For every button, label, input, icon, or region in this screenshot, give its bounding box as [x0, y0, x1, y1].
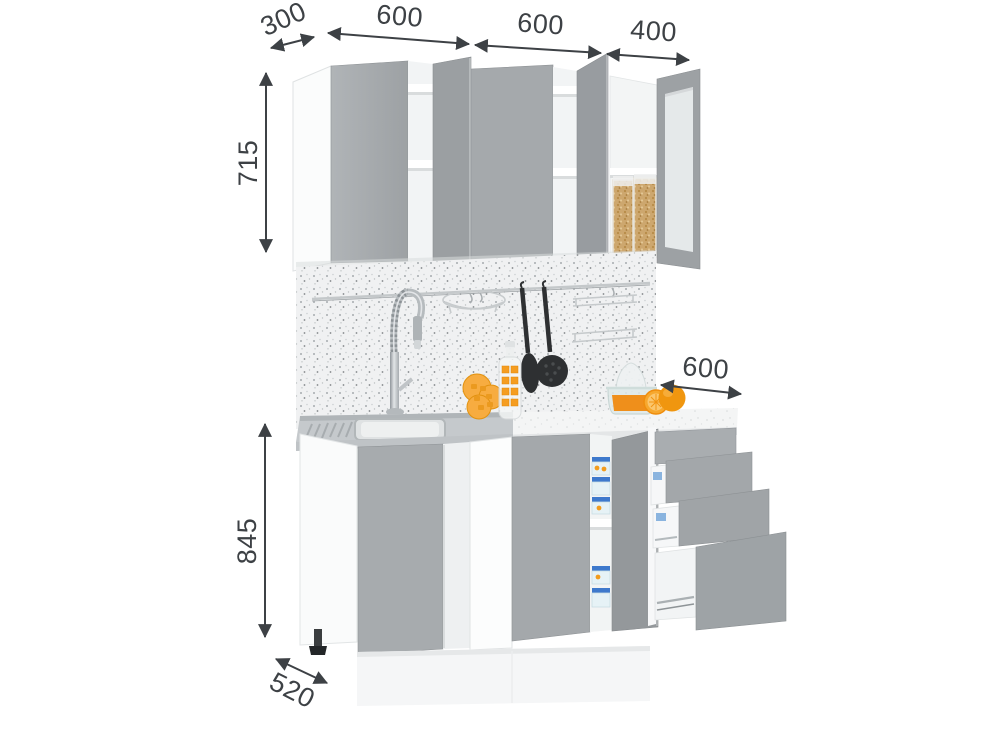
drawer-3-box [653, 506, 679, 548]
kitchen-render: 300 600 600 400 715 600 845 520 [0, 0, 1000, 750]
upper-door-closed-left [331, 61, 408, 263]
base-door-ajar [358, 444, 443, 654]
dim-label-base-height: 845 [232, 518, 262, 565]
dim-base-height: 845 [232, 424, 265, 637]
dim-label-upper-depth: 300 [256, 0, 311, 42]
shelf [408, 84, 433, 92]
base-interior-left [443, 442, 470, 649]
kitchen-dimension-figure: 300 600 600 400 715 600 845 520 [0, 0, 1000, 750]
dim-upper-width-left: 600 [328, 0, 469, 44]
upper-side-panel [293, 66, 331, 271]
base-cabinets [300, 427, 786, 706]
orange-whole [659, 385, 686, 412]
dim-label-base-depth: 520 [265, 666, 320, 714]
upper-cabinets [293, 53, 700, 271]
drawer-unit [648, 427, 786, 630]
frosted-glass-pane [665, 87, 693, 252]
upper-door-open-center [577, 53, 608, 262]
base-door-open-white [470, 437, 512, 650]
dim-base-depth: 520 [265, 659, 327, 714]
drawer-4-front [696, 532, 786, 630]
dim-label-upper-width-center: 600 [516, 7, 565, 40]
dim-upper-depth: 300 [256, 0, 314, 48]
shelf [408, 160, 433, 168]
dim-upper-height: 715 [233, 73, 266, 252]
dim-label-upper-width-right: 400 [629, 14, 678, 47]
upper-door-open-left [433, 57, 471, 263]
grain-containers [613, 174, 656, 255]
dim-label-upper-width-left: 600 [375, 0, 424, 33]
shelf [610, 168, 657, 175]
upper-door-closed-center [471, 65, 553, 261]
dim-label-counter-depth: 600 [681, 351, 730, 385]
shelf [590, 519, 612, 527]
base-door-closed-center [512, 434, 590, 641]
dim-upper-width-center: 600 [475, 7, 601, 53]
dim-upper-width-right: 400 [607, 14, 689, 60]
upper-glass-door [657, 69, 700, 269]
drawer-2-box [651, 465, 666, 505]
base-side-panel [300, 434, 357, 645]
dim-label-upper-height: 715 [233, 140, 263, 187]
